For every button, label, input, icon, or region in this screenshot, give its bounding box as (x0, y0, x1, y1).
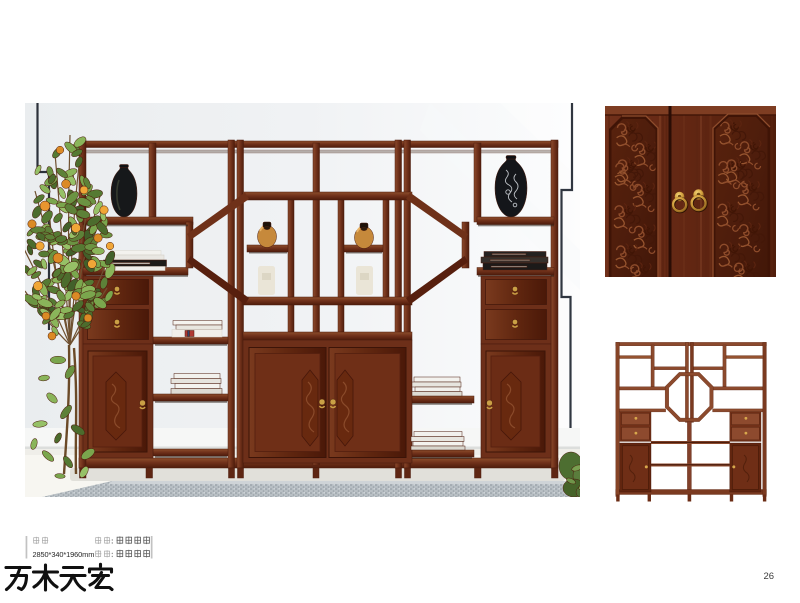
svg-text:26: 26 (764, 571, 775, 582)
svg-text:2850*340*1960mm: 2850*340*1960mm (33, 550, 95, 559)
